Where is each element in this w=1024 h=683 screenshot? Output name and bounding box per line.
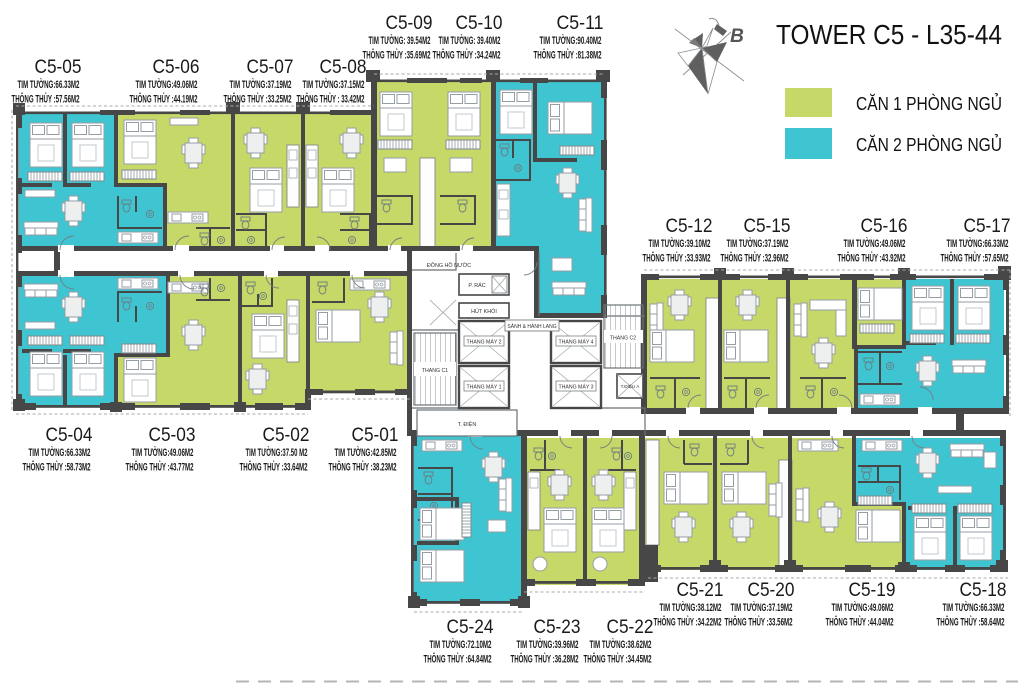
svg-text:THANG MÁY 1: THANG MÁY 1 <box>466 384 501 391</box>
svg-text:C5-02: C5-02 <box>263 424 310 446</box>
svg-text:THÔNG THỦY :43.77M2: THÔNG THỦY :43.77M2 <box>126 461 194 474</box>
svg-text:TIM TƯỜNG:66.33M2: TIM TƯỜNG:66.33M2 <box>943 601 1005 614</box>
svg-text:C5-22: C5-22 <box>607 616 654 638</box>
svg-text:THÔNG THỦY :33.93M2: THÔNG THỦY :33.93M2 <box>643 252 711 265</box>
svg-text:THÔNG THỦY :57.65M2: THÔNG THỦY :57.65M2 <box>941 252 1009 265</box>
svg-text:TIM TƯỜNG:39.10M2: TIM TƯỜNG:39.10M2 <box>649 237 711 250</box>
svg-text:THÔNG THỦY :38.23M2: THÔNG THỦY :38.23M2 <box>329 461 397 474</box>
svg-text:THANG C2: THANG C2 <box>610 336 636 342</box>
svg-text:C5-05: C5-05 <box>35 56 82 78</box>
svg-text:THÔNG THỦY :58.73M2: THÔNG THỦY :58.73M2 <box>23 461 91 474</box>
svg-text:TIM TƯỜNG:38.12M2: TIM TƯỜNG:38.12M2 <box>660 601 722 614</box>
svg-text:C5-20: C5-20 <box>748 579 795 601</box>
svg-text:TIM TƯỜNG:37.15M2: TIM TƯỜNG:37.15M2 <box>303 78 365 91</box>
svg-text:TIM TƯỜNG:38.62M2: TIM TƯỜNG:38.62M2 <box>590 638 652 651</box>
svg-text:THÔNG THỦY :57.56M2: THÔNG THỦY :57.56M2 <box>12 93 80 106</box>
svg-text:C5-18: C5-18 <box>960 579 1007 601</box>
svg-text:TIM TƯỜNG:37.19M2: TIM TƯỜNG:37.19M2 <box>731 601 793 614</box>
svg-text:B: B <box>730 26 744 47</box>
svg-text:C5-08: C5-08 <box>320 56 367 78</box>
svg-text:THÔNG THỦY :34.45M2: THÔNG THỦY :34.45M2 <box>584 653 652 666</box>
svg-text:C5-09: C5-09 <box>386 12 433 34</box>
svg-text:THÔNG THỦY :34.22M2: THÔNG THỦY :34.22M2 <box>654 616 722 629</box>
svg-text:TIM TƯỜNG:42.85M2: TIM TƯỜNG:42.85M2 <box>335 446 397 459</box>
svg-text:THÔNG THỦY :33.64M2: THÔNG THỦY :33.64M2 <box>240 461 308 474</box>
svg-text:C5-03: C5-03 <box>149 424 196 446</box>
svg-text:THÔNG THỦY :58.64M2: THÔNG THỦY :58.64M2 <box>937 616 1005 629</box>
svg-text:THANG MÁY 4: THANG MÁY 4 <box>558 339 593 346</box>
svg-text:HÚT KHÓI: HÚT KHÓI <box>471 308 497 315</box>
svg-text:TIM TƯỜNG:72.10M2: TIM TƯỜNG:72.10M2 <box>430 638 492 651</box>
svg-text:TIM TƯỜNG: 39.40M2: TIM TƯỜNG: 39.40M2 <box>439 34 501 47</box>
svg-text:C5-24: C5-24 <box>447 616 494 638</box>
svg-text:THÔNG THỦY :44.04M2: THÔNG THỦY :44.04M2 <box>826 616 894 629</box>
svg-text:THÔNG THỦY :32.96M2: THÔNG THỦY :32.96M2 <box>721 252 789 265</box>
svg-text:THÔNG THỦY :44.19M2: THÔNG THỦY :44.19M2 <box>130 93 198 106</box>
svg-text:C5-12: C5-12 <box>666 215 713 237</box>
svg-text:TOWER C5 - L35-44: TOWER C5 - L35-44 <box>776 19 1002 50</box>
svg-text:TIM TƯỜNG:37.19M2: TIM TƯỜNG:37.19M2 <box>727 237 789 250</box>
svg-text:THANG MÁY 3: THANG MÁY 3 <box>558 384 593 391</box>
svg-text:THÔNG THỦY :35.69M2: THÔNG THỦY :35.69M2 <box>363 49 431 62</box>
svg-text:THÔNG THỦY :33.56M2: THÔNG THỦY :33.56M2 <box>725 616 793 629</box>
svg-text:TIM TƯỜNG:66.33M2: TIM TƯỜNG:66.33M2 <box>947 237 1009 250</box>
svg-text:THÔNG THỦY :64.84M2: THÔNG THỦY :64.84M2 <box>424 653 492 666</box>
svg-text:T. ĐIỆN: T. ĐIỆN <box>458 420 477 428</box>
svg-text:ĐỒNG HỒ NƯỚC: ĐỒNG HỒ NƯỚC <box>427 262 471 269</box>
svg-text:THÔNG THỦY :34.24M2: THÔNG THỦY :34.24M2 <box>433 49 501 62</box>
svg-text:C5-04: C5-04 <box>46 424 93 446</box>
svg-text:C5-07: C5-07 <box>247 56 294 78</box>
svg-text:CĂN 2 PHÒNG NGỦ: CĂN 2 PHÒNG NGỦ <box>856 134 1002 155</box>
svg-text:TIM TƯỜNG:66.33M2: TIM TƯỜNG:66.33M2 <box>18 78 80 91</box>
svg-text:THÔNG THỦY :43.92M2: THÔNG THỦY :43.92M2 <box>838 252 906 265</box>
svg-text:C5-21: C5-21 <box>677 579 724 601</box>
svg-text:P. RÁC: P. RÁC <box>468 282 485 289</box>
svg-text:C5-17: C5-17 <box>964 215 1011 237</box>
svg-text:TIM TƯỜNG:49.06M2: TIM TƯỜNG:49.06M2 <box>832 601 894 614</box>
svg-text:TIM TƯỜNG:90.40M2: TIM TƯỜNG:90.40M2 <box>540 34 602 47</box>
svg-text:CĂN 1 PHÒNG NGỦ: CĂN 1 PHÒNG NGỦ <box>856 93 1002 114</box>
svg-text:THÔNG THỦY :81.38M2: THÔNG THỦY :81.38M2 <box>534 49 602 62</box>
svg-text:TIM TƯỜNG: 39.54M2: TIM TƯỜNG: 39.54M2 <box>369 34 431 47</box>
svg-text:SẢNH & HÀNH LANG: SẢNH & HÀNH LANG <box>507 323 556 330</box>
svg-text:C5-16: C5-16 <box>861 215 908 237</box>
svg-text:TIM TƯỜNG:66.33M2: TIM TƯỜNG:66.33M2 <box>29 446 91 459</box>
svg-text:THÔNG THỦY : 33.42M2: THÔNG THỦY : 33.42M2 <box>297 93 365 106</box>
svg-text:C5-19: C5-19 <box>849 579 896 601</box>
svg-text:THANG MÁY 2: THANG MÁY 2 <box>466 339 501 346</box>
svg-text:TIM TƯỜNG:49.06M2: TIM TƯỜNG:49.06M2 <box>132 446 194 459</box>
svg-text:THÔNG THỦY :33.25M2: THÔNG THỦY :33.25M2 <box>224 93 292 106</box>
svg-text:TIM TƯỜNG:37.19M2: TIM TƯỜNG:37.19M2 <box>230 78 292 91</box>
svg-text:C5-11: C5-11 <box>557 12 604 34</box>
svg-text:THANG C1: THANG C1 <box>422 368 448 374</box>
svg-text:THÔNG THỦY :36.28M2: THÔNG THỦY :36.28M2 <box>511 653 579 666</box>
svg-text:TIM TƯỜNG:37.50 M2: TIM TƯỜNG:37.50 M2 <box>246 446 308 459</box>
svg-text:C5-01: C5-01 <box>352 424 399 446</box>
svg-text:TIM TƯỜNG:39.96M2: TIM TƯỜNG:39.96M2 <box>517 638 579 651</box>
svg-text:C5-23: C5-23 <box>534 616 581 638</box>
svg-text:C5-06: C5-06 <box>153 56 200 78</box>
svg-text:TIM TƯỜNG:49.06M2: TIM TƯỜNG:49.06M2 <box>136 78 198 91</box>
svg-text:C5-15: C5-15 <box>744 215 791 237</box>
svg-text:T.ĐIỆU A: T.ĐIỆU A <box>621 382 641 389</box>
svg-text:TIM TƯỜNG:49.06M2: TIM TƯỜNG:49.06M2 <box>844 237 906 250</box>
svg-text:C5-10: C5-10 <box>456 12 503 34</box>
